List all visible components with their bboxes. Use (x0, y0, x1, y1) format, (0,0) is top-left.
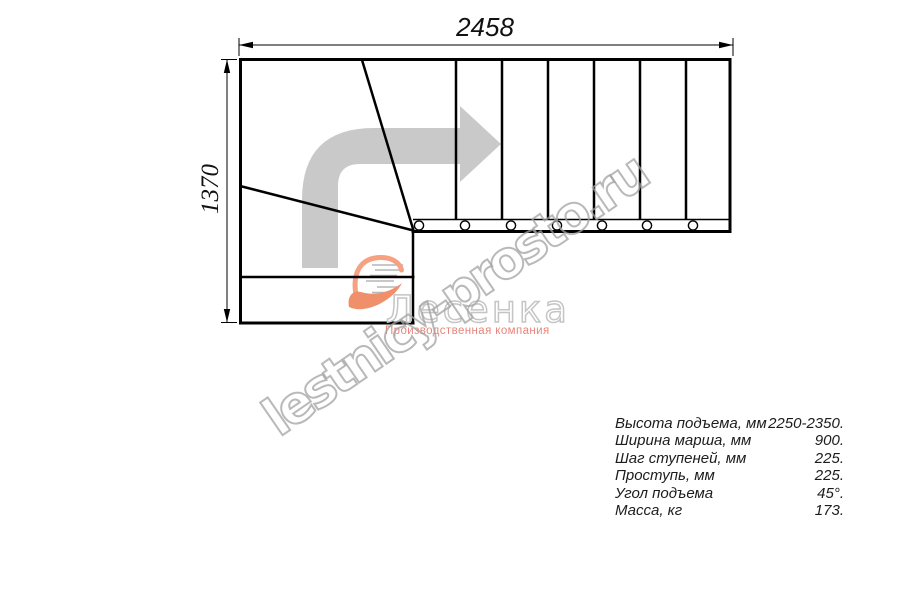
spec-table: Высота подъема, мм 2250-2350. Ширина мар… (615, 415, 844, 519)
bolt-circles (414, 221, 697, 230)
spec-value: 2250-2350. (768, 415, 844, 432)
spec-value: 900. (815, 432, 844, 449)
dimension-width-label: 2458 (445, 12, 525, 43)
spec-value: 45°. (817, 485, 844, 502)
spec-row-flight-width: Ширина марша, мм 900. (615, 432, 844, 449)
spec-value: 225. (815, 467, 844, 484)
dimension-arrowheads (224, 42, 733, 323)
spec-label: Масса, кг (615, 502, 682, 519)
spec-label: Ширина марша, мм (615, 432, 751, 449)
spec-row-rise-height: Высота подъема, мм 2250-2350. (615, 415, 844, 432)
dimension-lines (221, 38, 733, 323)
spec-label: Шаг ступеней, мм (615, 450, 746, 467)
stair-plan-page: 2458 1370 Лесенка Производственная компа… (0, 0, 900, 600)
logo-subtitle: Производственная компания (385, 325, 550, 337)
spec-row-step-pitch: Шаг ступеней, мм 225. (615, 450, 844, 467)
spec-row-angle: Угол подъема 45°. (615, 485, 844, 502)
spec-label: Проступь, мм (615, 467, 715, 484)
spec-row-tread: Проступь, мм 225. (615, 467, 844, 484)
spec-label: Угол подъема (615, 485, 713, 502)
dimension-height-label: 1370 (197, 149, 221, 229)
spec-label: Высота подъема, мм (615, 415, 767, 432)
spec-row-mass: Масса, кг 173. (615, 502, 844, 519)
spec-value: 225. (815, 450, 844, 467)
spec-value: 173. (815, 502, 844, 519)
